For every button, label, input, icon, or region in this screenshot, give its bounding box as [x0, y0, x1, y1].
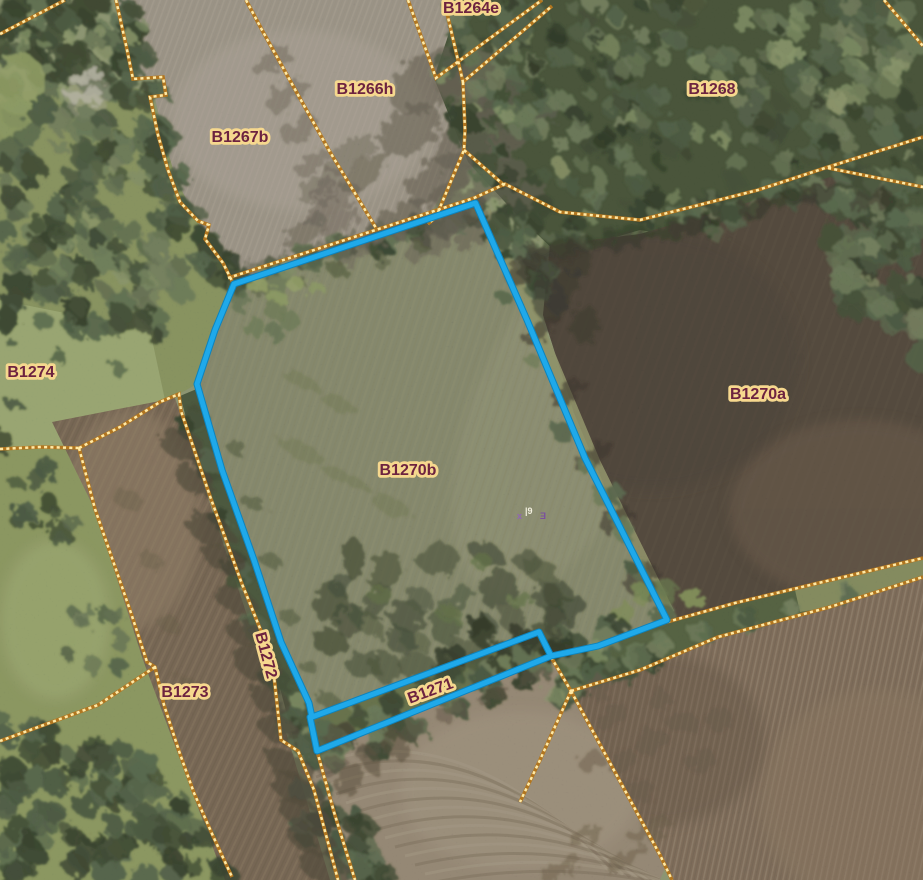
svg-text:B1273: B1273: [161, 684, 208, 701]
svg-text:|9: |9: [525, 506, 533, 516]
svg-text:B1268: B1268: [688, 81, 735, 98]
svg-text:Ǝ: Ǝ: [540, 511, 546, 521]
svg-text:B1266h: B1266h: [337, 81, 394, 98]
svg-text:x: x: [517, 511, 522, 521]
svg-text:B1267b: B1267b: [212, 129, 269, 146]
svg-text:B1274: B1274: [7, 364, 54, 381]
svg-text:B1264e: B1264e: [443, 0, 499, 17]
svg-text:B1270a: B1270a: [730, 386, 786, 403]
svg-text:B1270b: B1270b: [380, 462, 437, 479]
